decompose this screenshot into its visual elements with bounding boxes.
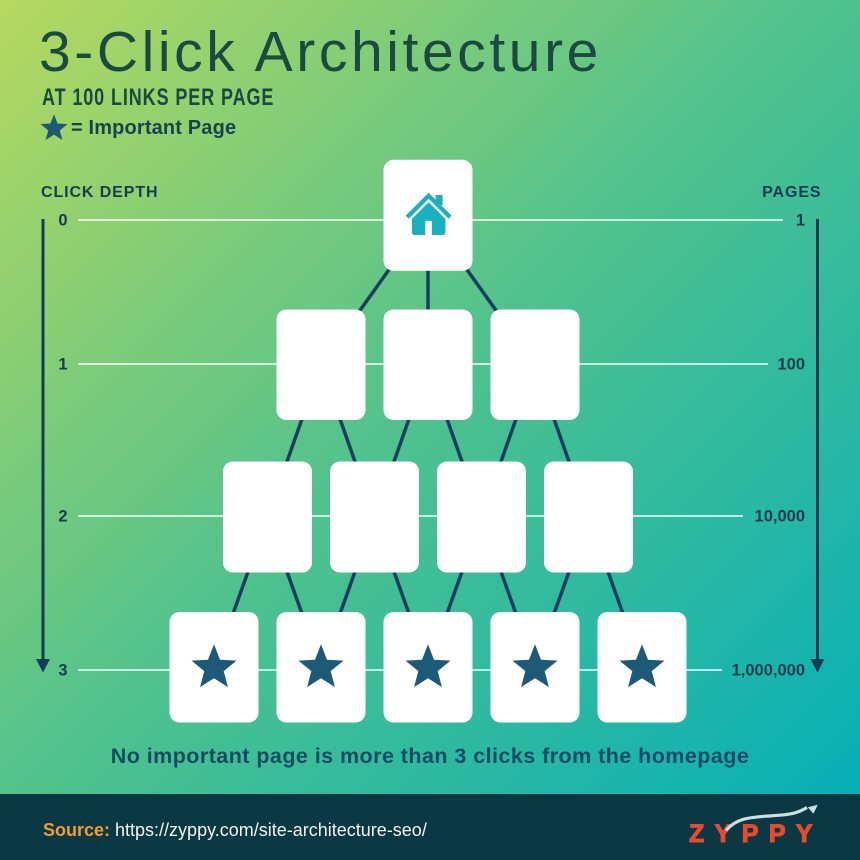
svg-text:1,000,000: 1,000,000 xyxy=(732,662,805,680)
svg-text:0: 0 xyxy=(58,212,67,230)
svg-text:2: 2 xyxy=(58,508,67,526)
svg-text:1: 1 xyxy=(796,212,805,230)
svg-text:1: 1 xyxy=(58,356,67,374)
svg-text:10,000: 10,000 xyxy=(755,508,805,526)
svg-text:100: 100 xyxy=(777,356,805,374)
svg-text:3: 3 xyxy=(58,662,67,680)
